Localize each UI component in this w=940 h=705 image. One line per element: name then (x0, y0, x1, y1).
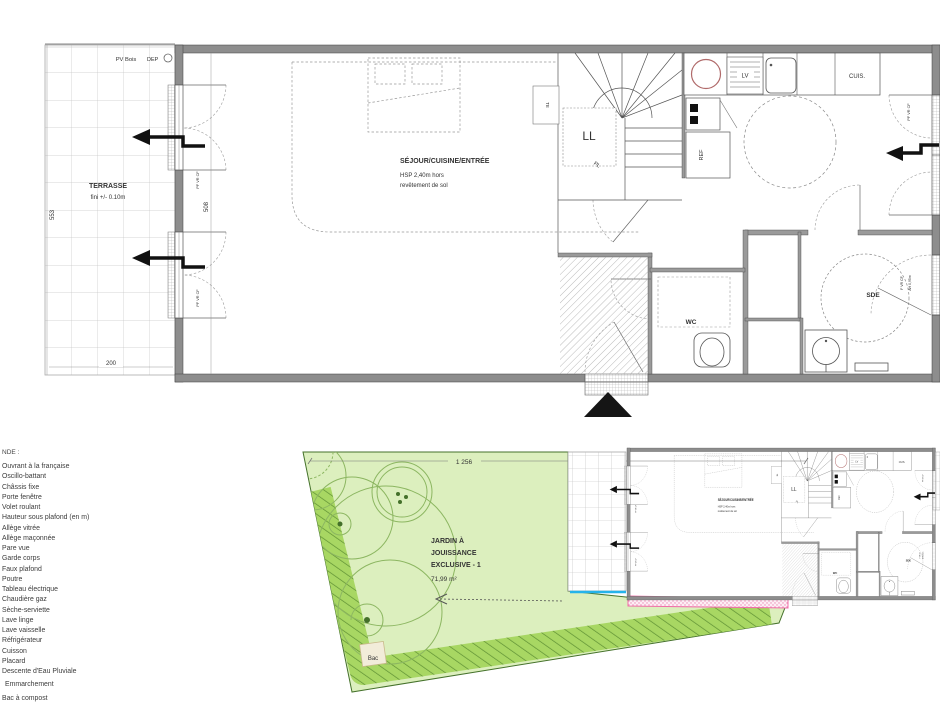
garden-label-line3: EXCLUSIVE - 1 (431, 562, 481, 569)
legend-item: Châssis fixe (2, 483, 172, 493)
entry-marker (584, 392, 632, 417)
legend-title: NDE : (2, 449, 172, 456)
legend-item: Descente d'Eau Pluviale (2, 667, 172, 677)
legend-item: Lave vaisselle (2, 626, 172, 636)
legend-item: Allège maçonnée (2, 534, 172, 544)
window-annotations: PF VR CF PF VR CF PF VR CF F VR CF AH 0,… (196, 103, 912, 307)
legend-item: Placard (2, 657, 172, 667)
washer-label: LL (582, 129, 596, 143)
garden-label-line2: JOUISSANCE (431, 550, 477, 557)
toilet-icon (694, 333, 730, 367)
room-label-sejour: SÉJOUR/CUISINE/ENTRÉE (400, 156, 490, 165)
door-leaves (183, 85, 932, 372)
legend-item: Garde corps (2, 554, 172, 564)
fridge-box (686, 132, 730, 178)
washbasin-icon (805, 330, 847, 372)
towel-radiator-icon (855, 363, 888, 371)
dep-label: DEP (147, 57, 159, 63)
entry-floor-hatch (560, 257, 648, 374)
cooking-label: CUIS. (849, 74, 865, 80)
pv-bois-label: PV Bois (116, 57, 137, 63)
floor-plan-sheet: PV Bois DEP TERRASSE fini +/- 0.10m 553 … (0, 0, 940, 705)
sink-icon (766, 58, 796, 93)
window-code-right: PF VR CF (907, 103, 911, 121)
legend-item: Emmarchement (2, 680, 172, 690)
legend-item: Oscillo-battant (2, 472, 172, 482)
dwelling-unit: LL PL TE LV CUIS. (132, 45, 940, 395)
compost-bin-label: Bac (368, 656, 378, 662)
fridge-label: REF (699, 149, 705, 161)
legend-item: Sèche-serviette (2, 606, 172, 616)
dim-200: 200 (106, 361, 117, 367)
shower-zone (821, 254, 909, 342)
table-outline (744, 96, 836, 188)
legend-item: Tableau électrique (2, 585, 172, 595)
garden-label-line1: JARDIN À (431, 536, 464, 545)
legend-item: Cuisson (2, 647, 172, 657)
wc-room: WC (658, 277, 730, 367)
hsp-line1: HSP 2,40m hors (400, 173, 444, 179)
entry-step (585, 382, 648, 395)
legend-item: Chaudière gaz (2, 595, 172, 605)
legend: NDE : Ouvrant à la française Oscillo-bat… (2, 449, 172, 704)
window-code-left1: PF VR CF (196, 171, 200, 189)
legend-item: Porte fenêtre (2, 493, 172, 503)
legend-item: Volet roulant (2, 503, 172, 513)
vent-arrows (132, 129, 939, 267)
electrical-panel-label: TE (545, 102, 550, 108)
legend-item: Faux plafond (2, 565, 172, 575)
wc-label: WC (686, 319, 697, 326)
garden-area: 71,99 m² (431, 576, 457, 583)
dim-508: 508 (204, 201, 210, 212)
legend-item: Ouvrant à la française (2, 462, 172, 472)
window-height-sde: AH 0,95m (908, 275, 912, 291)
legend-item: Poutre (2, 575, 172, 585)
legend-item: Pare vue (2, 544, 172, 554)
legend-item: Allège vitrée (2, 524, 172, 534)
sde-room: SDE (805, 254, 909, 372)
sde-label: SDE (866, 292, 880, 299)
terrace: PV Bois DEP TERRASSE fini +/- 0.10m 553 … (45, 44, 175, 375)
dim-1256: 1 256 (456, 459, 473, 466)
window-code-sde: F VR CF (900, 276, 904, 290)
compost-bin (360, 641, 387, 666)
terrace-note: fini +/- 0.10m (91, 195, 126, 201)
dishwasher: LV (727, 57, 763, 94)
terrace-tiles (45, 45, 175, 375)
legend-item: Bac à compost (2, 694, 172, 704)
legend-item: Lave linge (2, 616, 172, 626)
kitchen: LV CUIS. REF (684, 53, 880, 188)
dim-553: 553 (50, 209, 56, 220)
legend-item: Hauteur sous plafond (en m) (2, 513, 172, 523)
legend-item: Réfrigérateur (2, 636, 172, 646)
mini-plan (610, 448, 936, 606)
dishwasher-label: LV (742, 74, 749, 80)
terrace-label: TERRASSE (89, 183, 127, 190)
door-swings (183, 85, 932, 372)
window-code-left2: PF VR CF (196, 289, 200, 307)
hsp-line2: revêtement de sol (400, 183, 448, 189)
